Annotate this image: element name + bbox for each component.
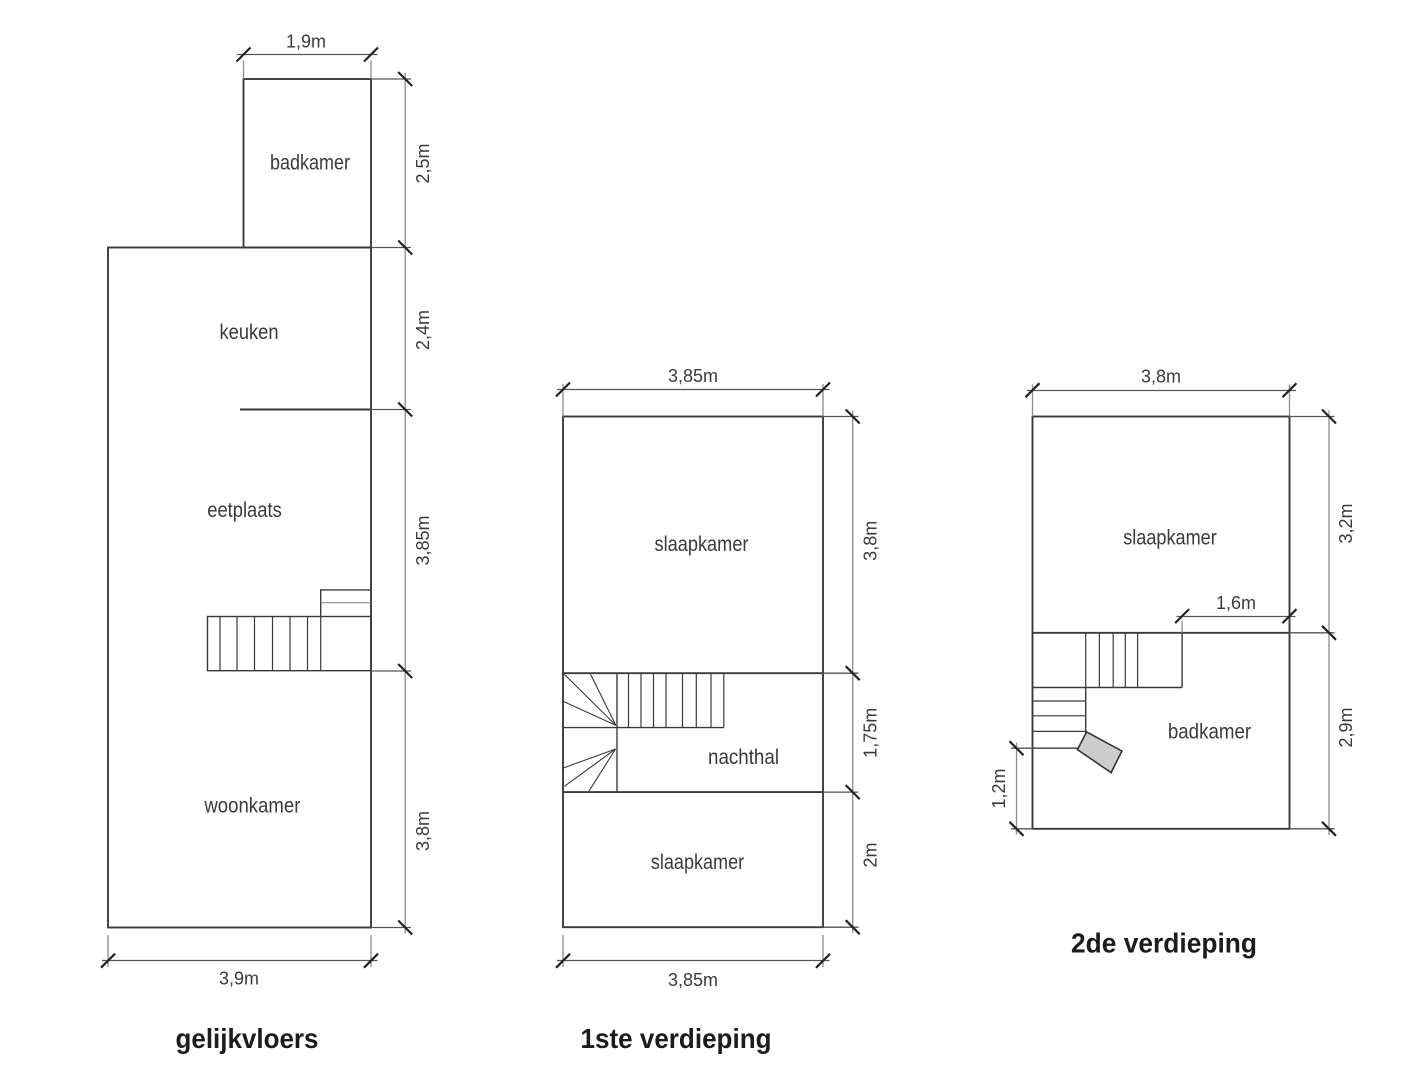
svg-text:3,85m: 3,85m — [668, 366, 718, 386]
svg-text:3,85m: 3,85m — [413, 515, 433, 565]
svg-text:3,85m: 3,85m — [668, 970, 718, 990]
svg-text:3,8m: 3,8m — [861, 521, 881, 561]
svg-text:slaapkamer: slaapkamer — [1123, 527, 1217, 550]
svg-text:1,6m: 1,6m — [1216, 593, 1256, 613]
svg-text:3,2m: 3,2m — [1336, 503, 1356, 543]
svg-text:3,9m: 3,9m — [219, 969, 259, 989]
svg-text:slaapkamer: slaapkamer — [655, 533, 749, 556]
svg-text:gelijkvloers: gelijkvloers — [176, 1023, 319, 1054]
svg-text:1ste verdieping: 1ste verdieping — [581, 1023, 772, 1054]
svg-text:1,9m: 1,9m — [286, 31, 326, 51]
svg-text:3,8m: 3,8m — [413, 811, 433, 851]
svg-text:2de verdieping: 2de verdieping — [1071, 928, 1257, 959]
svg-text:2,9m: 2,9m — [1336, 707, 1356, 747]
svg-text:2,5m: 2,5m — [413, 143, 433, 183]
svg-text:eetplaats: eetplaats — [207, 499, 282, 522]
svg-text:1,2m: 1,2m — [989, 768, 1009, 808]
svg-text:2,4m: 2,4m — [413, 310, 433, 350]
svg-text:badkamer: badkamer — [1168, 721, 1251, 744]
svg-text:nachthal: nachthal — [708, 746, 779, 769]
svg-text:1,75m: 1,75m — [861, 708, 881, 758]
svg-text:slaapkamer: slaapkamer — [651, 851, 744, 874]
svg-text:woonkamer: woonkamer — [204, 794, 301, 817]
svg-text:keuken: keuken — [220, 321, 279, 344]
svg-text:2m: 2m — [861, 842, 881, 867]
svg-text:3,8m: 3,8m — [1141, 367, 1181, 387]
svg-text:badkamer: badkamer — [270, 152, 350, 175]
